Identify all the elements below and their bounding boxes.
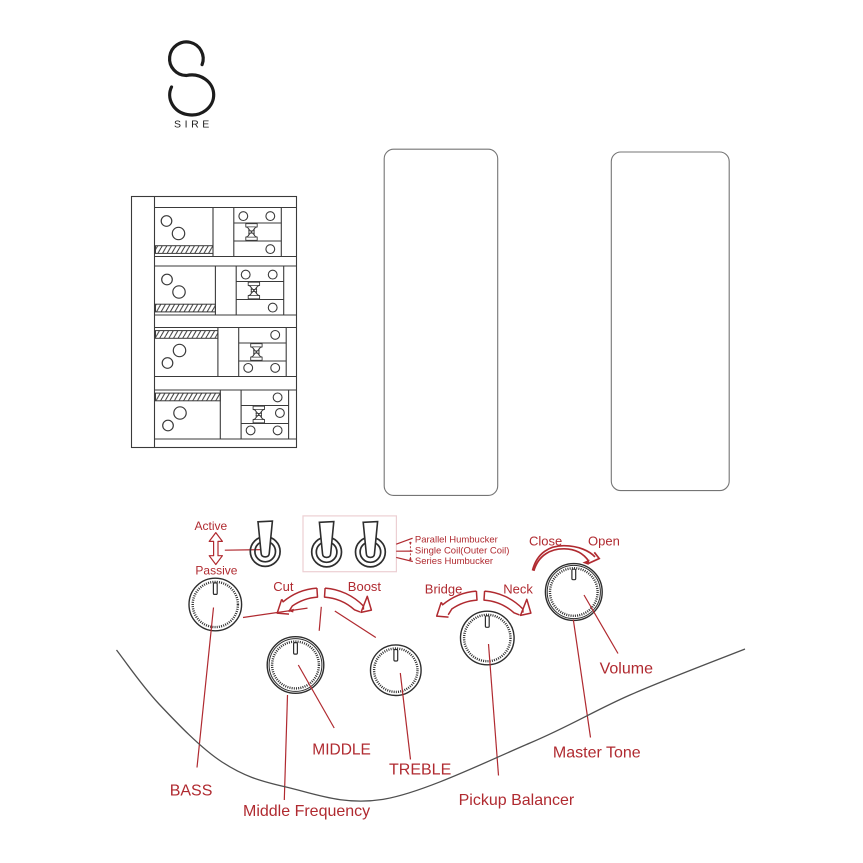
svg-text:SIRE: SIRE [174,119,213,131]
svg-text:Master Tone: Master Tone [553,745,641,762]
svg-text:Volume: Volume [600,661,653,678]
svg-text:Boost: Boost [348,579,382,594]
svg-text:BASS: BASS [170,783,213,800]
svg-text:Middle Frequency: Middle Frequency [243,803,370,820]
svg-text:Passive: Passive [195,564,237,578]
svg-text:TREBLE: TREBLE [389,762,451,779]
svg-text:Single Coil(Outer Coil): Single Coil(Outer Coil) [415,545,510,556]
svg-text:Pickup Balancer: Pickup Balancer [459,792,575,809]
svg-text:Neck: Neck [503,582,533,597]
svg-text:MIDDLE: MIDDLE [312,742,371,759]
svg-text:Close: Close [529,534,562,549]
svg-text:Bridge: Bridge [425,582,463,597]
svg-text:Series Humbucker: Series Humbucker [415,556,493,567]
svg-text:Open: Open [588,534,620,549]
svg-text:Parallel Humbucker: Parallel Humbucker [415,535,498,546]
svg-text:Active: Active [195,519,228,533]
svg-text:Cut: Cut [273,579,294,594]
